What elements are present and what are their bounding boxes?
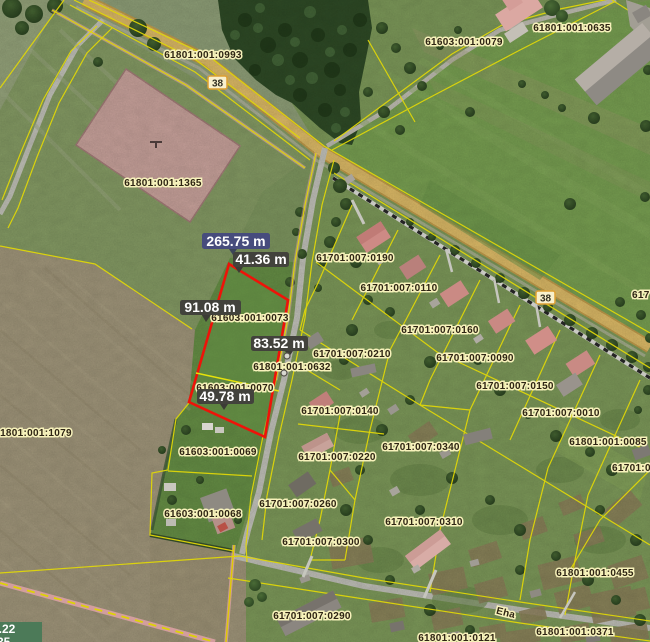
svg-text:61701:007:0160: 61701:007:0160 <box>401 325 479 336</box>
svg-text:61801:001:0121: 61801:001:0121 <box>418 633 496 642</box>
svg-text:265.75 m: 265.75 m <box>206 233 265 249</box>
svg-text:61701:007:0300: 61701:007:0300 <box>282 537 360 548</box>
svg-text:61701:007:00: 61701:007:00 <box>612 463 650 474</box>
svg-text:7.22: 7.22 <box>0 622 16 636</box>
svg-text:61701:007:0150: 61701:007:0150 <box>476 381 554 392</box>
svg-text:61603:001:0068: 61603:001:0068 <box>164 509 242 520</box>
svg-text:61701:007:0290: 61701:007:0290 <box>273 611 351 622</box>
svg-text:49.78 m: 49.78 m <box>199 388 250 404</box>
svg-text:38: 38 <box>212 79 224 90</box>
svg-text:61701:007:0090: 61701:007:0090 <box>436 353 514 364</box>
svg-text:83.52 m: 83.52 m <box>253 335 304 351</box>
svg-text:61801:001:0455: 61801:001:0455 <box>556 568 634 579</box>
svg-text:61801:001:0371: 61801:001:0371 <box>536 627 614 638</box>
svg-text:41.36 m: 41.36 m <box>235 251 286 267</box>
svg-text:38: 38 <box>540 294 552 305</box>
svg-text:61701:007:0340: 61701:007:0340 <box>382 442 460 453</box>
svg-text:61801:001:0632: 61801:001:0632 <box>253 362 331 373</box>
svg-text:61701:007:0140: 61701:007:0140 <box>301 406 379 417</box>
svg-text:61701:007:0260: 61701:007:0260 <box>259 499 337 510</box>
svg-text:61801:001:0993: 61801:001:0993 <box>164 50 242 61</box>
svg-text:61603:001:0079: 61603:001:0079 <box>425 37 503 48</box>
svg-text:61801:001:1365: 61801:001:1365 <box>124 178 202 189</box>
svg-text:61701:007:0220: 61701:007:0220 <box>298 452 376 463</box>
svg-text:61801:001:0635: 61801:001:0635 <box>533 23 611 34</box>
svg-text:61801:001:1079: 61801:001:1079 <box>0 428 72 439</box>
svg-text:91.08 m: 91.08 m <box>184 299 235 315</box>
svg-text:61701:007:0210: 61701:007:0210 <box>313 349 391 360</box>
svg-text:61701:007:0310: 61701:007:0310 <box>385 517 463 528</box>
svg-text:61603:001:0069: 61603:001:0069 <box>179 447 257 458</box>
svg-text:61701:007:0010: 61701:007:0010 <box>522 408 600 419</box>
svg-text:61701:007:0110: 61701:007:0110 <box>360 283 437 294</box>
svg-text:61801:001:0085: 61801:001:0085 <box>569 437 647 448</box>
svg-text:617: 617 <box>632 290 650 301</box>
svg-text:35: 35 <box>0 635 11 642</box>
svg-text:61701:007:0190: 61701:007:0190 <box>316 253 394 264</box>
